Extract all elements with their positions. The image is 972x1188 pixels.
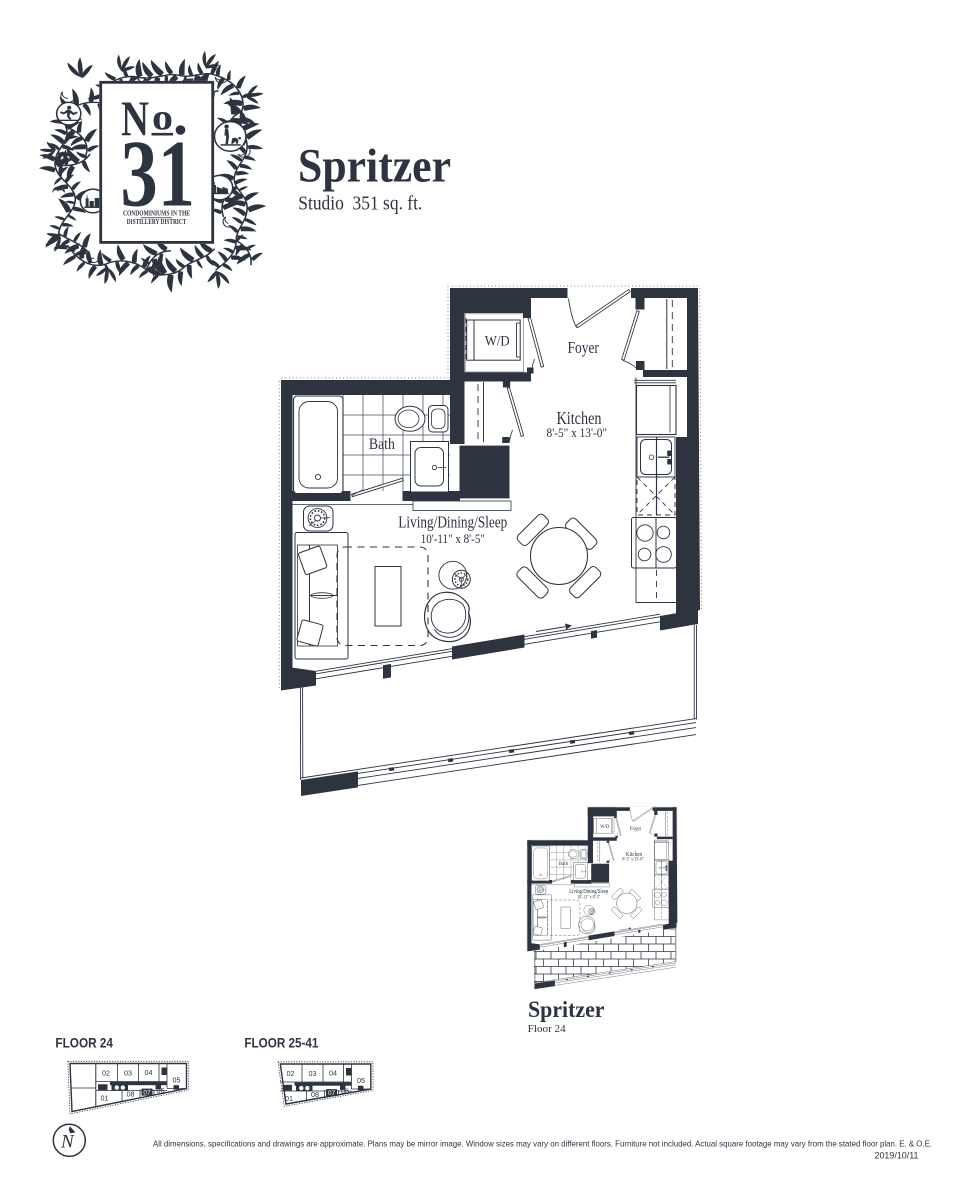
- svg-text:05: 05: [173, 1076, 181, 1085]
- svg-text:08: 08: [127, 1090, 135, 1099]
- svg-text:N: N: [60, 1132, 75, 1153]
- svg-text:CONDOMINIUMS IN THE: CONDOMINIUMS IN THE: [123, 208, 190, 217]
- svg-text:03: 03: [124, 1069, 132, 1078]
- svg-text:FLOOR 24: FLOOR 24: [55, 1035, 113, 1051]
- svg-text:Spritzer: Spritzer: [298, 141, 451, 193]
- svg-text:Studio 351 sq. ft.: Studio 351 sq. ft.: [298, 193, 422, 214]
- svg-text:Floor 24: Floor 24: [528, 1023, 566, 1035]
- svg-text:FLOOR 25-41: FLOOR 25-41: [244, 1035, 318, 1051]
- svg-text:All dimensions, specifications: All dimensions, specifications and drawi…: [153, 1139, 932, 1149]
- svg-text:06: 06: [157, 1086, 165, 1095]
- svg-text:DISTILLERY DISTRICT: DISTILLERY DISTRICT: [127, 217, 187, 226]
- svg-text:07: 07: [143, 1090, 151, 1097]
- svg-text:01: 01: [101, 1094, 109, 1103]
- svg-text:Spritzer: Spritzer: [528, 997, 605, 1022]
- svg-text:02: 02: [102, 1069, 110, 1078]
- svg-text:2019/10/11: 2019/10/11: [875, 1150, 919, 1161]
- svg-text:04: 04: [145, 1068, 153, 1077]
